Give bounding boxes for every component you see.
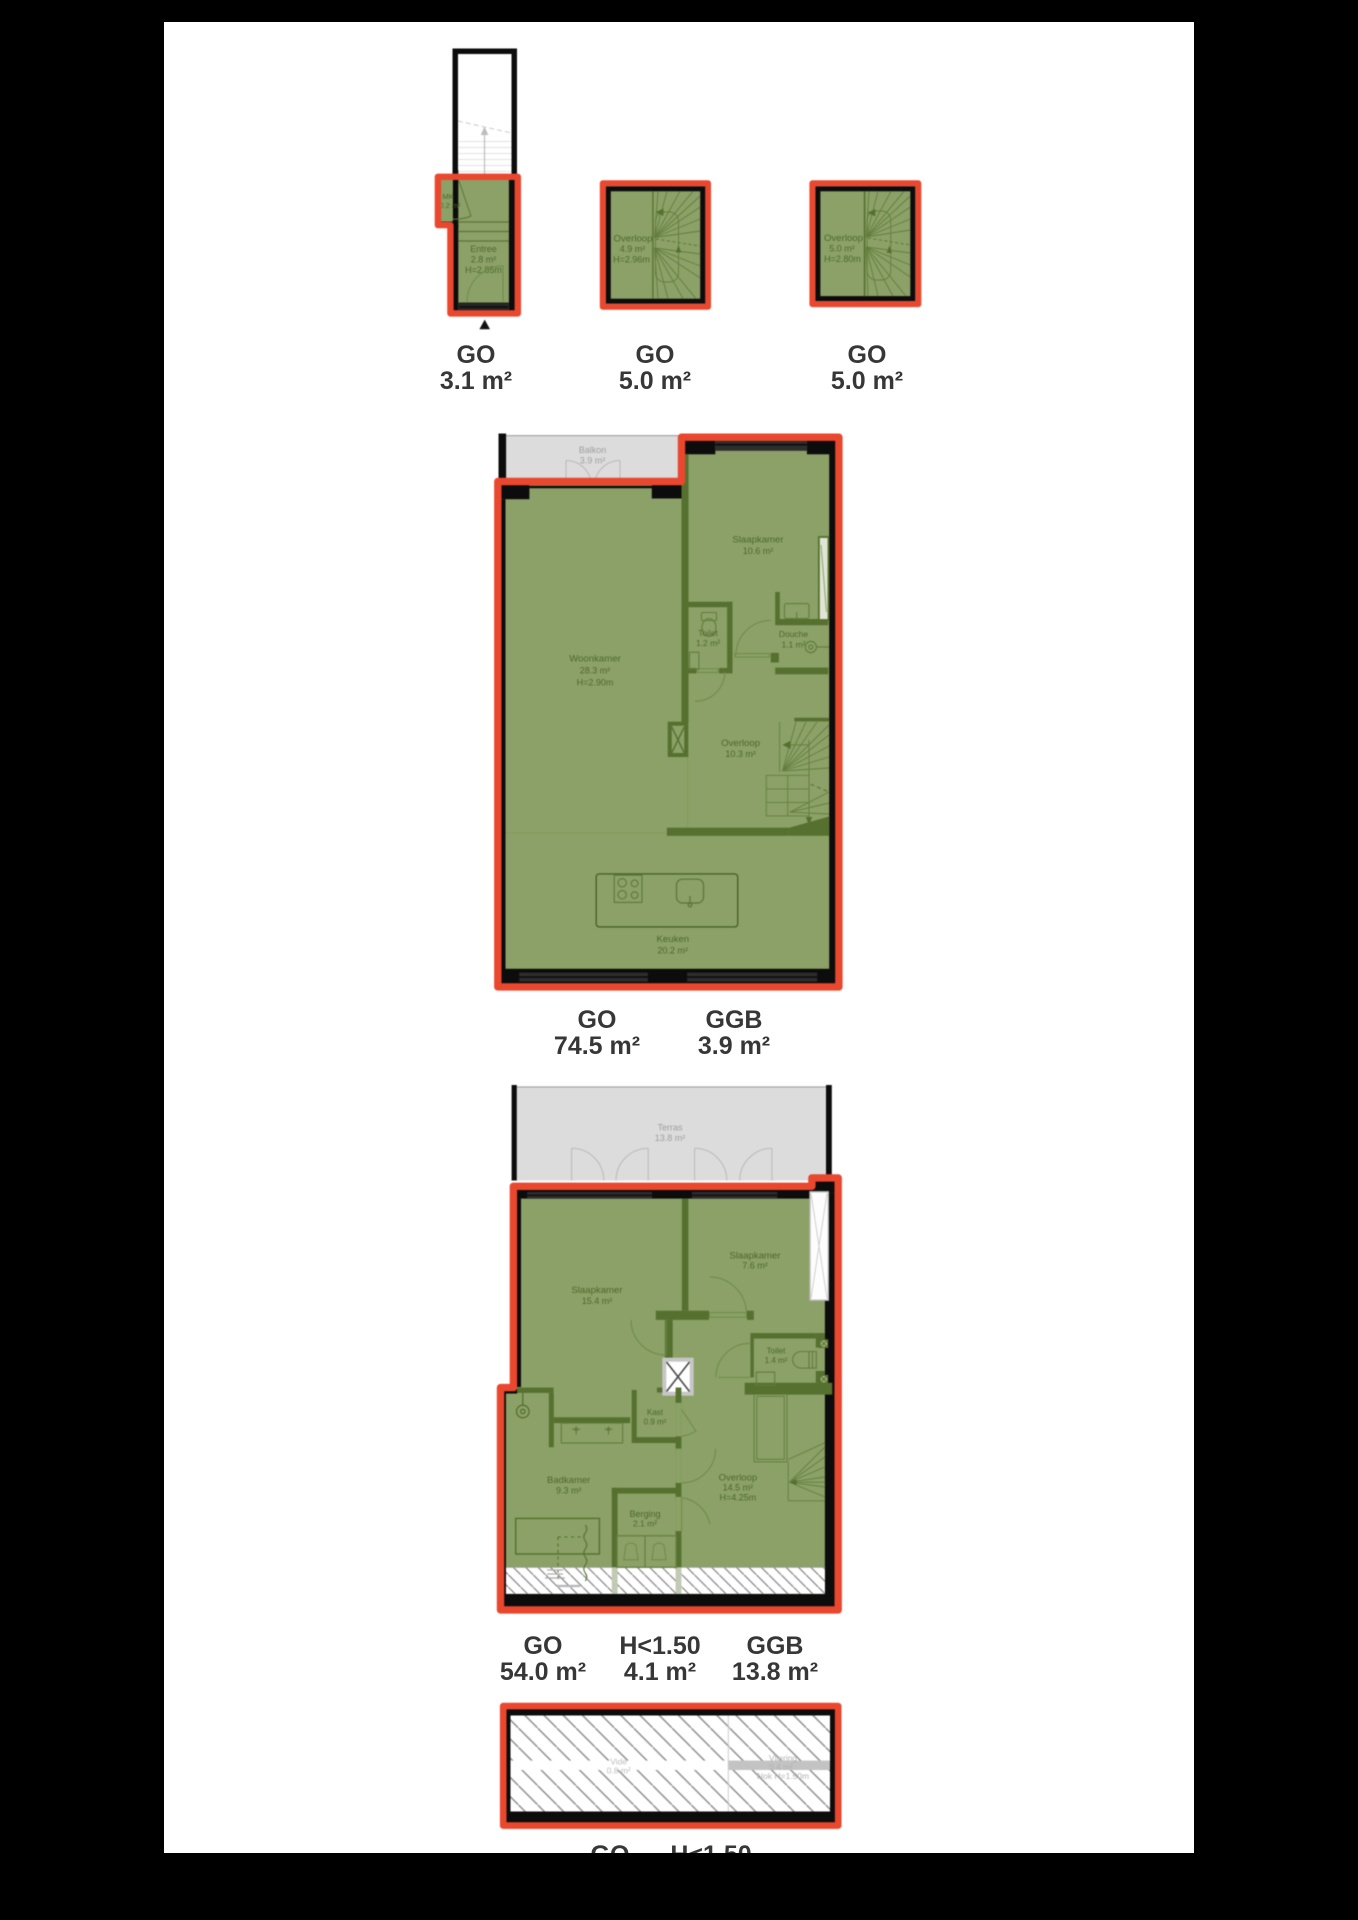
svg-text:Entree: Entree [470, 244, 497, 254]
svg-text:Badkamer: Badkamer [547, 1475, 590, 1486]
svg-text:H=2.80m: H=2.80m [824, 254, 861, 264]
svg-text:H=2.90m: H=2.90m [577, 678, 614, 688]
svg-text:3.9 m²: 3.9 m² [580, 456, 606, 466]
svg-text:0.2 m²: 0.2 m² [439, 201, 461, 210]
svg-text:10.6 m²: 10.6 m² [743, 546, 774, 556]
svg-text:1.4 m²: 1.4 m² [765, 1356, 788, 1365]
svg-text:Overloop: Overloop [721, 738, 760, 749]
svg-text:Douche: Douche [779, 629, 809, 639]
svg-text:Toilet: Toilet [767, 1347, 786, 1356]
svg-text:Toilet: Toilet [698, 628, 718, 638]
svg-text:0.8 m²: 0.8 m² [607, 1765, 631, 1775]
svg-text:15.4 m²: 15.4 m² [582, 1296, 613, 1306]
svg-text:Berging: Berging [629, 1509, 660, 1519]
svg-text:Overloop: Overloop [614, 234, 653, 245]
svg-text:Slaapkamer: Slaapkamer [571, 1285, 623, 1296]
svg-text:5.0 m²: 5.0 m² [829, 244, 855, 254]
svg-text:20.2 m²: 20.2 m² [658, 945, 689, 955]
svg-text:0.9 m²: 0.9 m² [644, 1418, 667, 1427]
svg-text:1.1 m²: 1.1 m² [781, 640, 805, 650]
svg-text:Woonkamer: Woonkamer [569, 654, 621, 665]
svg-text:Keuken: Keuken [657, 934, 690, 945]
svg-text:2.1 m²: 2.1 m² [633, 1519, 657, 1529]
svg-text:4.9 m²: 4.9 m² [620, 244, 646, 254]
svg-text:Overloop: Overloop [824, 233, 863, 244]
svg-text:28.3 m²: 28.3 m² [580, 666, 611, 676]
svg-text:Kast: Kast [647, 1408, 664, 1417]
svg-text:2.8 m²: 2.8 m² [471, 255, 497, 265]
svg-text:7.6 m²: 7.6 m² [742, 1260, 768, 1270]
svg-text:1.2 m²: 1.2 m² [696, 638, 720, 648]
svg-text:Slaapkamer: Slaapkamer [732, 535, 784, 546]
svg-text:9.3 m²: 9.3 m² [556, 1486, 582, 1496]
svg-text:13.8 m²: 13.8 m² [655, 1133, 686, 1143]
svg-text:10.3 m²: 10.3 m² [725, 749, 756, 759]
svg-text:Nok H=1.50m: Nok H=1.50m [757, 1771, 809, 1781]
svg-text:MK: MK [442, 192, 453, 201]
svg-text:H=2.96m: H=2.96m [613, 255, 650, 265]
svg-text:H=4.25m: H=4.25m [720, 1492, 757, 1502]
svg-text:14.5 m²: 14.5 m² [723, 1482, 754, 1492]
svg-text:Balkon: Balkon [579, 445, 607, 455]
svg-text:Terras: Terras [657, 1123, 683, 1133]
